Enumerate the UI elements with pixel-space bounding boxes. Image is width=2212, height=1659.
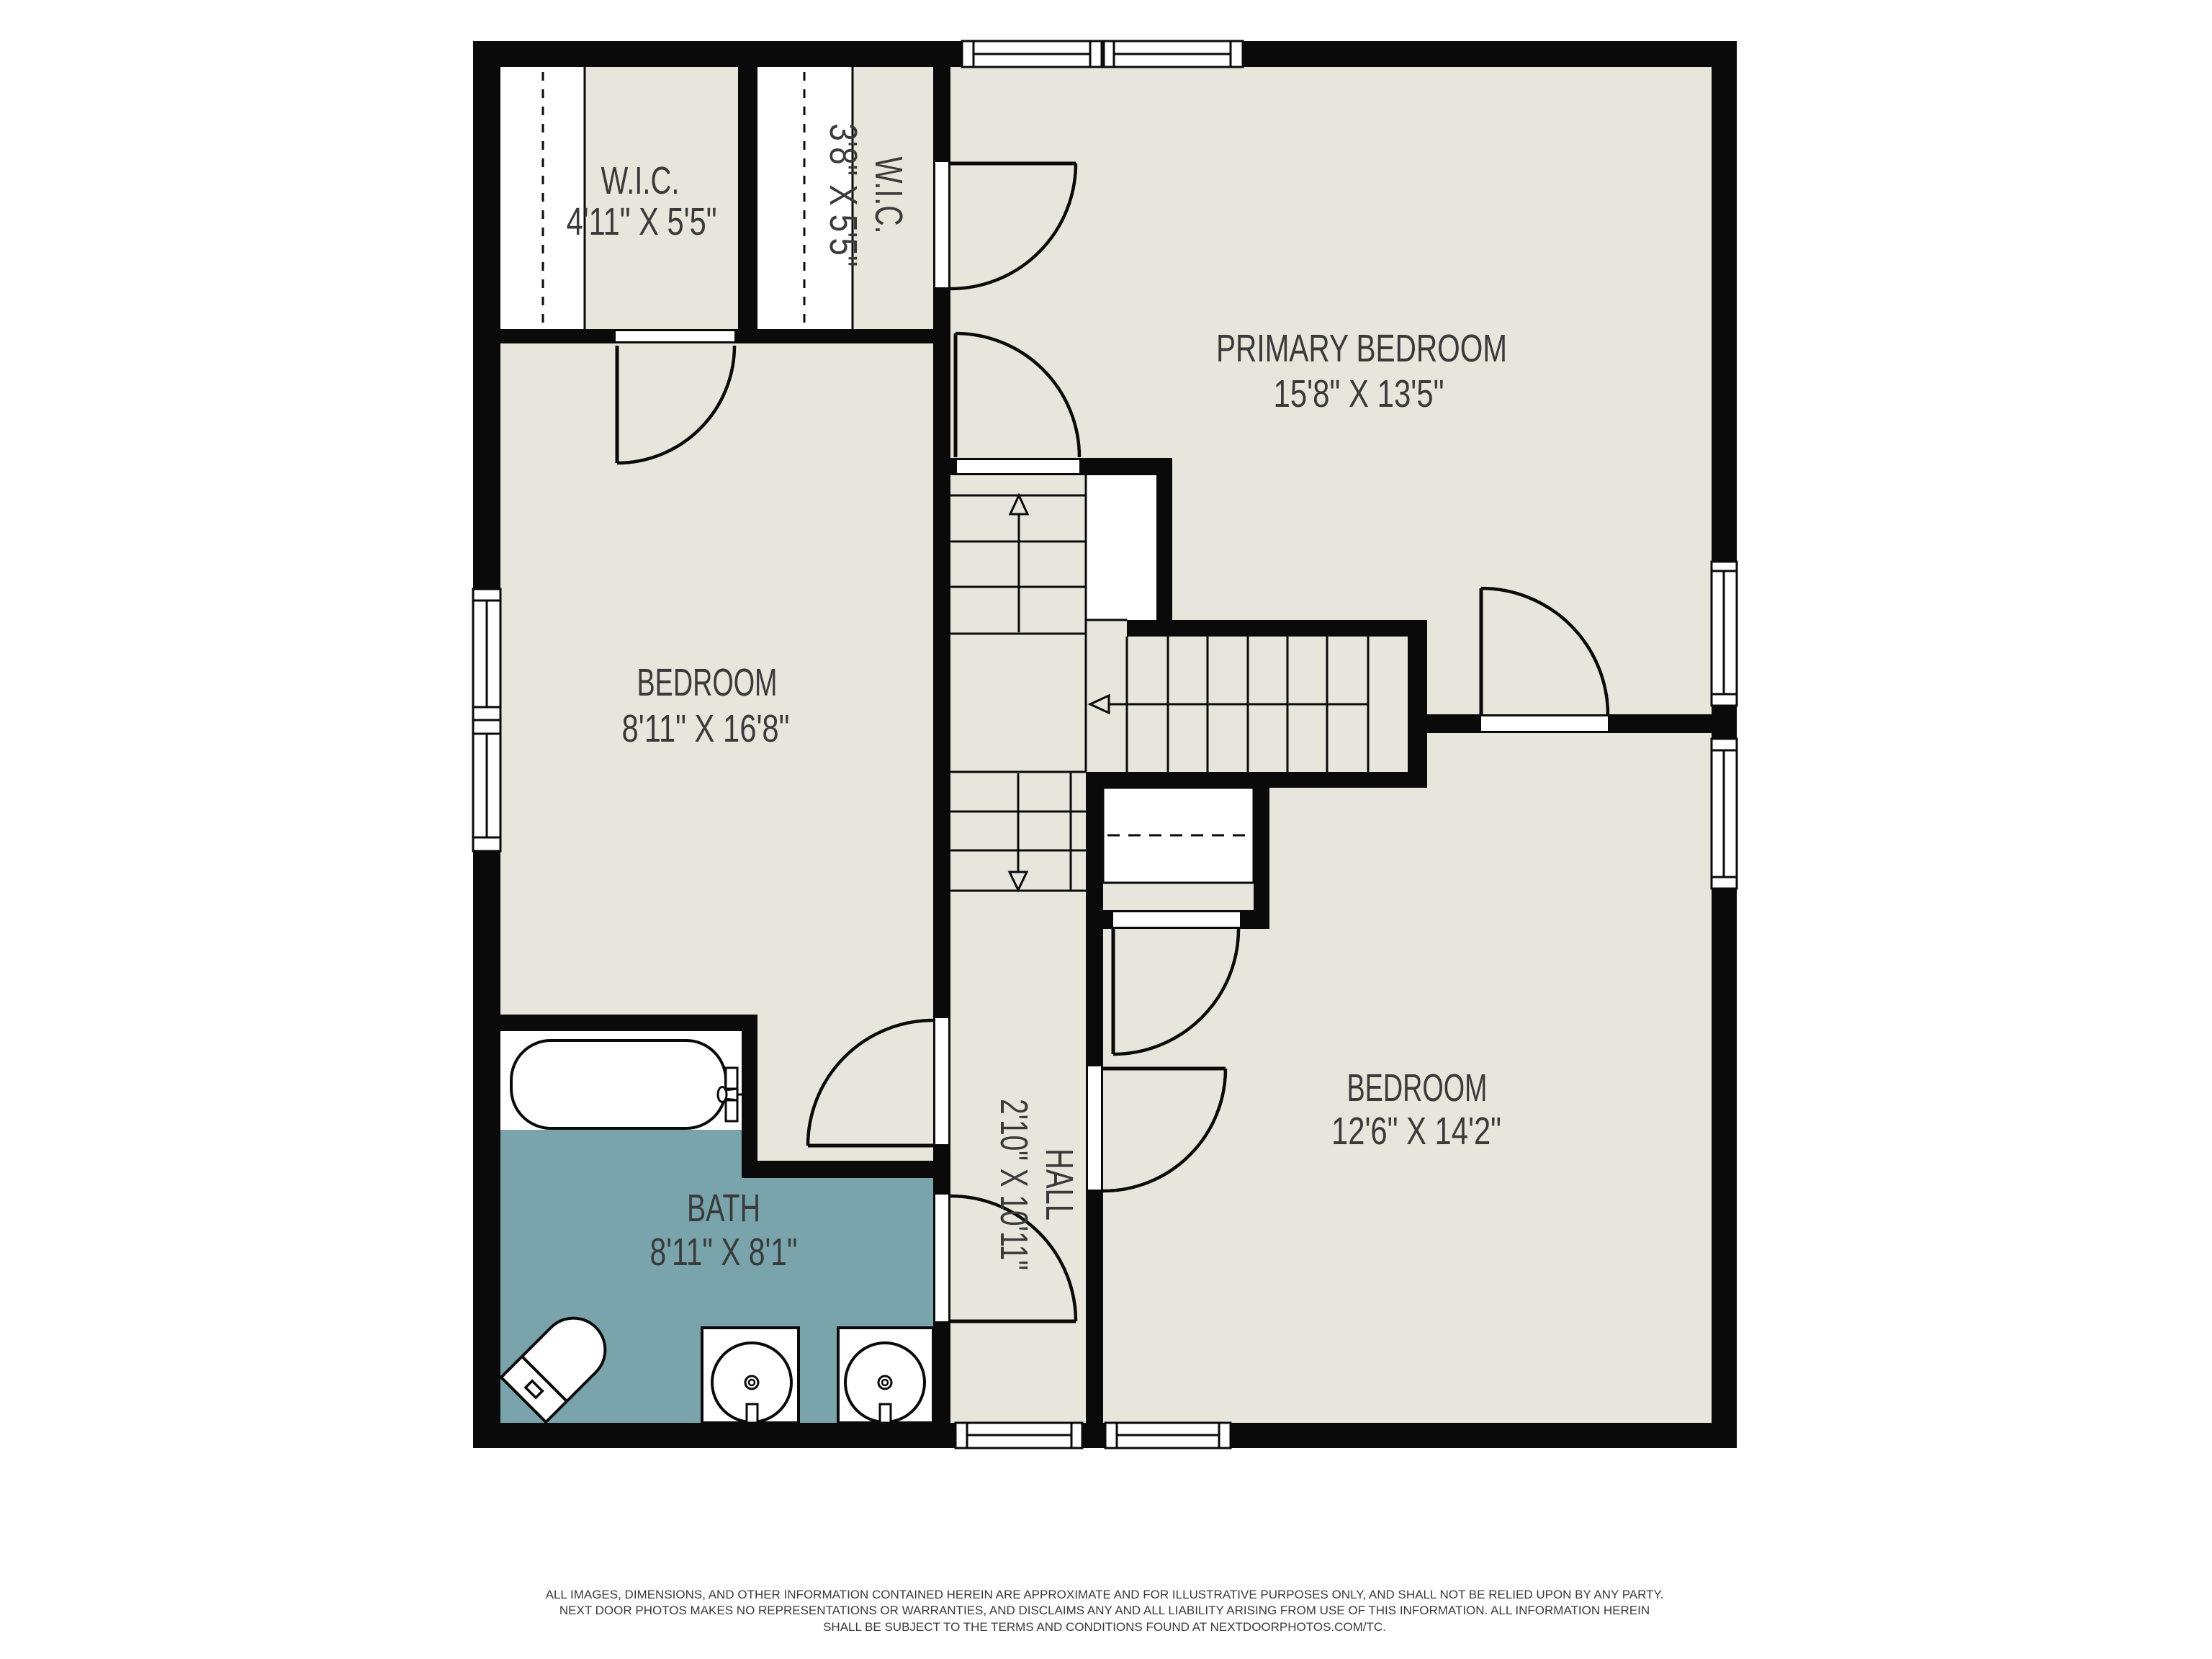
svg-text:15'8" X 13'5": 15'8" X 13'5": [1274, 372, 1444, 415]
svg-text:BATH: BATH: [687, 1187, 760, 1230]
svg-text:4'11" X 5'5": 4'11" X 5'5": [567, 200, 717, 243]
svg-text:3'8" X 5'5": 3'8" X 5'5": [822, 124, 865, 267]
svg-text:SHALL BE SUBJECT TO THE TERMS: SHALL BE SUBJECT TO THE TERMS AND CONDIT…: [823, 1620, 1386, 1634]
svg-text:8'11" X 16'8": 8'11" X 16'8": [622, 707, 790, 750]
svg-text:12'6" X 14'2": 12'6" X 14'2": [1331, 1110, 1501, 1153]
svg-text:ALL IMAGES, DIMENSIONS, AND OT: ALL IMAGES, DIMENSIONS, AND OTHER INFORM…: [546, 1588, 1664, 1601]
svg-text:NEXT DOOR PHOTOS MAKES NO REPR: NEXT DOOR PHOTOS MAKES NO REPRESENTATION…: [559, 1604, 1650, 1617]
svg-text:W.I.C.: W.I.C.: [867, 157, 910, 234]
svg-text:PRIMARY BEDROOM: PRIMARY BEDROOM: [1216, 327, 1507, 370]
svg-text:BEDROOM: BEDROOM: [637, 661, 778, 704]
svg-text:HALL: HALL: [1038, 1148, 1081, 1220]
svg-text:W.I.C.: W.I.C.: [601, 159, 680, 202]
svg-text:BEDROOM: BEDROOM: [1347, 1066, 1488, 1110]
svg-text:2'10" X 10'11": 2'10" X 10'11": [992, 1099, 1035, 1270]
svg-text:8'11" X 8'1": 8'11" X 8'1": [650, 1231, 798, 1274]
